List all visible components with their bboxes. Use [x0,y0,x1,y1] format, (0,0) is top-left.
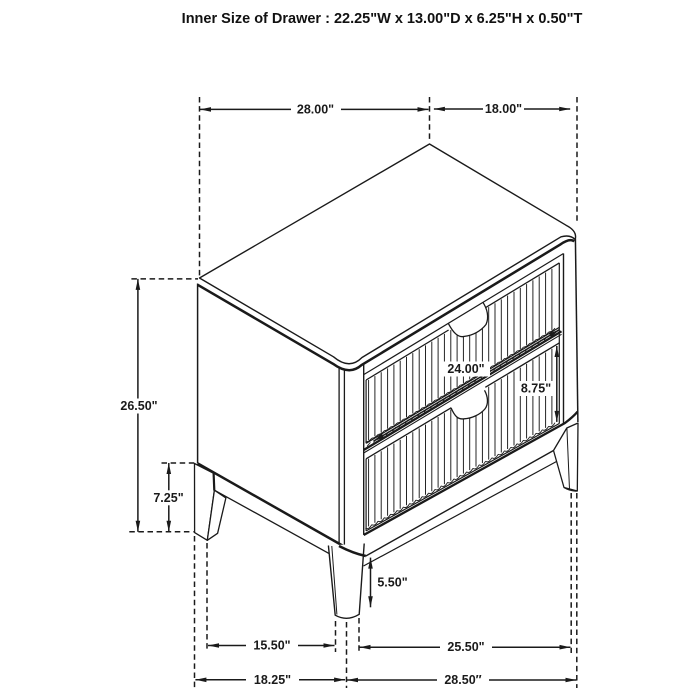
svg-text:26.50": 26.50" [120,399,157,413]
svg-text:8.75": 8.75" [521,382,551,396]
svg-text:5.50": 5.50" [377,576,407,590]
svg-text:18.00": 18.00" [485,102,522,116]
svg-text:24.00": 24.00" [447,362,484,376]
svg-text:28.00": 28.00" [297,102,334,116]
svg-text:18.25": 18.25" [254,673,291,687]
svg-text:25.50": 25.50" [447,640,484,654]
svg-text:Inner Size of Drawer : 22.25"W: Inner Size of Drawer : 22.25"W x 13.00"D… [182,11,583,27]
svg-text:28.50″: 28.50″ [444,673,481,687]
svg-text:15.50": 15.50" [253,639,290,653]
svg-text:7.25": 7.25" [153,491,183,505]
